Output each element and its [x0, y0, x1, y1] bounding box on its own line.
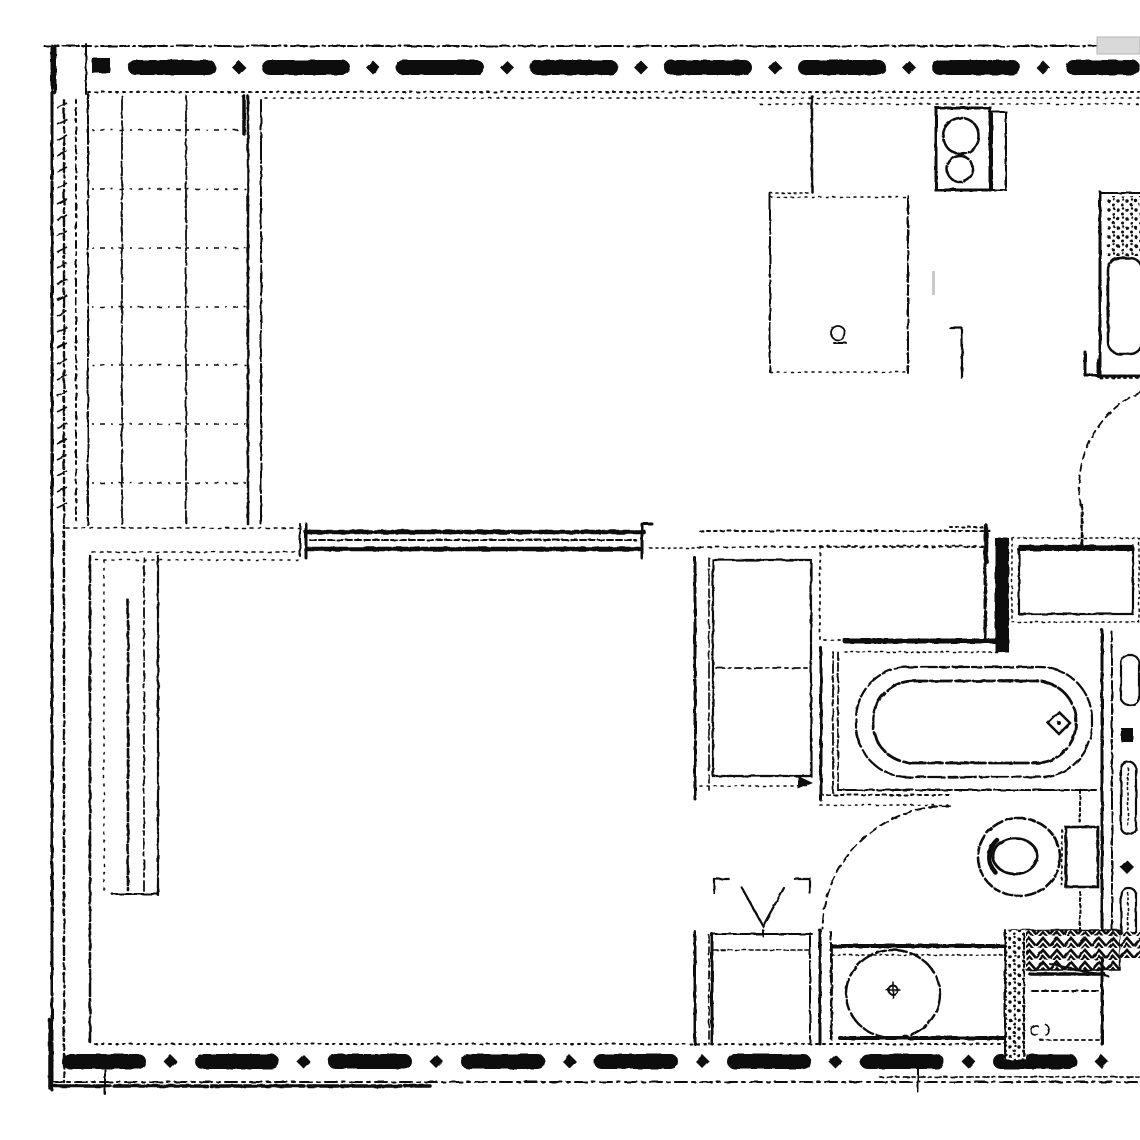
outer-wall-left: [52, 46, 90, 1090]
outer-wall-bottom: [50, 1020, 1140, 1094]
wall-insulation-diamond: [902, 61, 916, 75]
kitchen-sink: [1085, 192, 1140, 378]
wall-insulation-blob: [461, 1054, 545, 1069]
wardrobe-door-mark: [798, 776, 813, 789]
cooktop: [936, 108, 1006, 190]
wall-hatch-tick: [57, 455, 67, 460]
washbasin: [832, 946, 1006, 1040]
wall-stub: [995, 538, 1009, 652]
bath-cabinet: [1030, 958, 1104, 1044]
balcony-tile-grid: [92, 96, 261, 524]
wall-hatch-tick: [57, 247, 67, 252]
wall-insulation-diamond: [500, 61, 514, 75]
bathroom: [820, 630, 1140, 1060]
wall-insulation-diamond: [634, 61, 648, 75]
radiator: [1120, 655, 1139, 942]
wall-insulation-diamond: [768, 61, 782, 75]
masonry-hatch: [1004, 930, 1140, 1060]
wall-hatch-tick: [57, 359, 67, 364]
wall-hatch-tick: [57, 183, 67, 188]
interior-walls: [66, 524, 1009, 1044]
kitchen-door: [1079, 392, 1140, 546]
top-insulation-row: [128, 60, 1140, 75]
balcony-grid-lines: [92, 130, 246, 483]
hallway: [700, 560, 813, 1044]
wall-insulation-blob: [860, 1054, 944, 1069]
wall-insulation-blob: [195, 1054, 279, 1069]
scanner-artifacts: [932, 37, 1140, 295]
wall-hatch-tick: [57, 295, 67, 300]
wall-insulation-diamond: [430, 1055, 444, 1069]
wall-hatch-tick: [57, 327, 67, 332]
wall-hatch-tick: [57, 135, 67, 140]
wall-insulation-diamond: [1036, 61, 1050, 75]
wall-hatch-tick: [57, 375, 67, 380]
wardrobe: [700, 560, 813, 789]
outer-wall-top: [44, 44, 1140, 104]
wall-insulation-blob: [664, 60, 752, 75]
wall-hatch-tick: [57, 487, 67, 492]
left-pier: [96, 556, 300, 895]
bottom-insulation-row: [62, 1054, 1109, 1069]
wall-insulation-diamond: [829, 1055, 843, 1069]
wall-insulation-diamond: [696, 1055, 710, 1069]
wall-insulation-blob: [932, 60, 1020, 75]
sink-faucet-area: [1106, 196, 1140, 256]
wall-hatch-tick: [57, 503, 67, 508]
wall-insulation-blob: [530, 60, 618, 75]
wall-hatch-tick: [57, 311, 67, 316]
wall-hatch-tick: [57, 151, 67, 156]
scanned-page: [0, 0, 1140, 1140]
laundry-box: [712, 934, 812, 1044]
kitchen-counter: [770, 96, 962, 378]
left-wall-ticks: [57, 103, 67, 508]
wall-insulation-blob: [798, 60, 886, 75]
wall-insulation-blob: [128, 60, 216, 75]
wall-insulation-blob: [262, 60, 350, 75]
wall-hatch-tick: [57, 167, 67, 172]
wall-hatch-tick: [57, 279, 67, 284]
scan-mark: [1031, 1025, 1049, 1036]
wall-insulation-blob: [62, 1054, 146, 1069]
wall-insulation-blob: [92, 58, 110, 73]
bathroom-door: [820, 795, 952, 928]
wall-insulation-diamond: [962, 1055, 976, 1069]
wall-insulation-blob: [396, 60, 484, 75]
wall-hatch-tick: [57, 263, 67, 268]
wall-insulation-diamond: [164, 1055, 178, 1069]
burner-small: [947, 156, 973, 182]
counter-end-stub: [950, 328, 962, 378]
wall-hatch-tick: [57, 407, 67, 412]
wall-insulation-blob: [1066, 60, 1140, 75]
wall-insulation-diamond: [232, 61, 246, 75]
floor-plan-canvas: [0, 0, 1140, 1140]
wall-hatch-tick: [57, 439, 67, 444]
wall-insulation-diamond: [297, 1055, 311, 1069]
wall-hatch-tick: [57, 231, 67, 236]
kitchen-table: [820, 546, 986, 640]
wall-hatch-tick: [57, 391, 67, 396]
wall-hatch-tick: [57, 119, 67, 124]
kitchen: [770, 96, 1140, 640]
bathtub: [856, 667, 1092, 777]
wall-hatch-tick: [57, 423, 67, 428]
toilet: [978, 790, 1098, 930]
wall-hatch-tick: [57, 215, 67, 220]
wall-insulation-blob: [328, 1054, 412, 1069]
wall-hatch-tick: [57, 471, 67, 476]
vent-shaft: [714, 879, 810, 936]
refrigerator-unit: [1012, 538, 1139, 622]
wall-insulation-diamond: [1095, 1055, 1109, 1069]
wall-insulation-blob: [727, 1054, 811, 1069]
toilet-cistern: [1066, 827, 1098, 887]
wall-hatch-tick: [57, 343, 67, 348]
wall-insulation-diamond: [366, 61, 380, 75]
wall-hatch-tick: [57, 103, 67, 108]
wall-insulation-blob: [594, 1054, 678, 1069]
wall-insulation-diamond: [563, 1055, 577, 1069]
burner-large: [943, 118, 979, 154]
wall-hatch-tick: [57, 199, 67, 204]
counter-drain: [831, 326, 845, 340]
